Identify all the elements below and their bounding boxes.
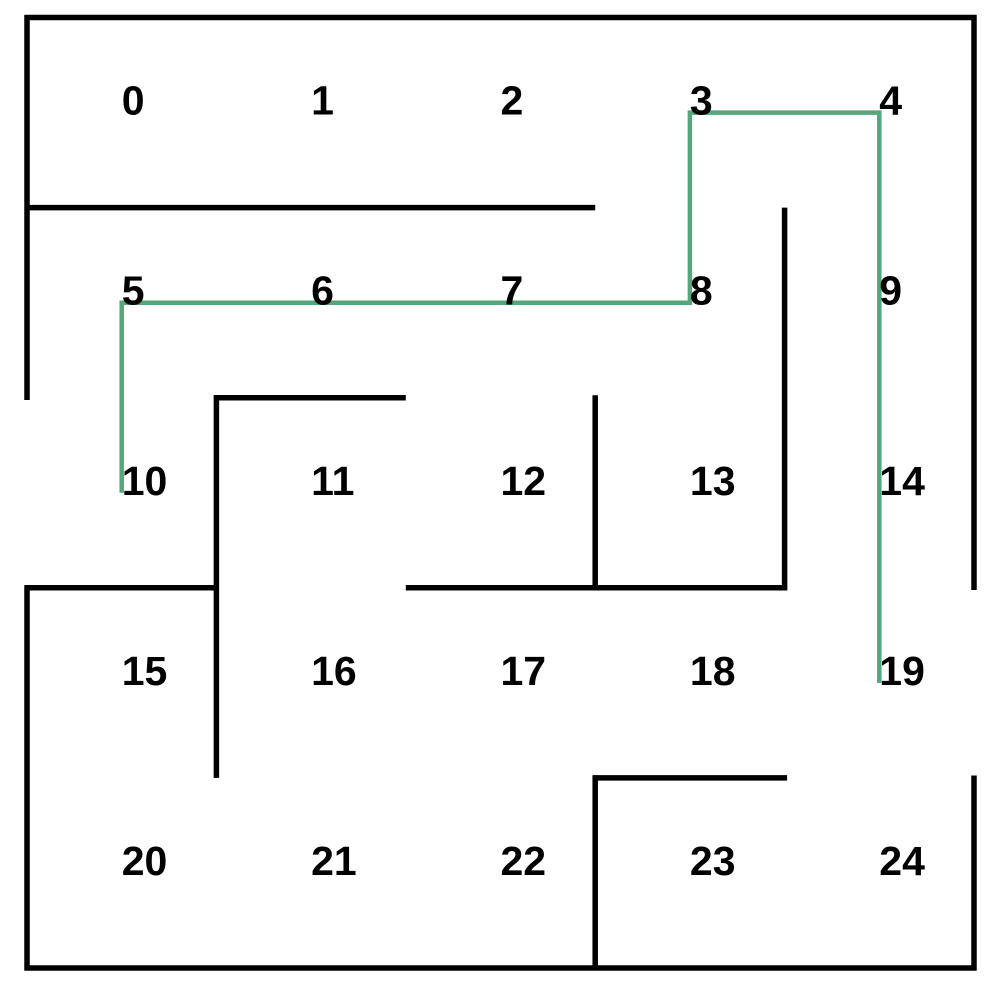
maze-svg: 0123456789101112131415161718192021222324 [0,0,1002,990]
cell-label-1: 1 [311,78,334,124]
cell-label-17: 17 [501,648,547,694]
cell-label-3: 3 [690,78,713,124]
cell-label-10: 10 [122,458,168,504]
cell-label-20: 20 [122,838,168,884]
cell-label-11: 11 [311,458,354,504]
cell-label-21: 21 [311,838,357,884]
cell-label-24: 24 [879,838,925,884]
cell-label-13: 13 [690,458,736,504]
cell-label-16: 16 [311,648,357,694]
cell-label-23: 23 [690,838,736,884]
cell-label-0: 0 [122,78,145,124]
cell-label-8: 8 [690,268,713,314]
cell-label-22: 22 [501,838,547,884]
cell-label-14: 14 [879,458,925,504]
cell-label-18: 18 [690,648,736,694]
cell-label-7: 7 [501,268,524,314]
cell-label-9: 9 [879,268,902,314]
cell-label-6: 6 [311,268,334,314]
cell-label-12: 12 [501,458,547,504]
cell-label-5: 5 [122,268,145,314]
maze-canvas: 0123456789101112131415161718192021222324 [0,0,1002,990]
cell-label-15: 15 [122,648,168,694]
cell-label-19: 19 [879,648,925,694]
cell-label-4: 4 [879,78,902,124]
cell-label-2: 2 [501,78,524,124]
